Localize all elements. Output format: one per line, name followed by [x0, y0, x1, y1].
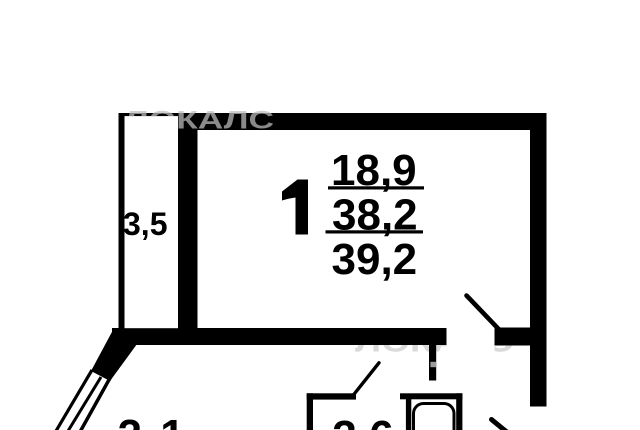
- svg-text:2,1: 2,1: [118, 411, 188, 430]
- svg-text:3,6: 3,6: [332, 412, 393, 430]
- svg-text:3,5: 3,5: [123, 206, 167, 242]
- svg-text:39,2: 39,2: [332, 235, 418, 284]
